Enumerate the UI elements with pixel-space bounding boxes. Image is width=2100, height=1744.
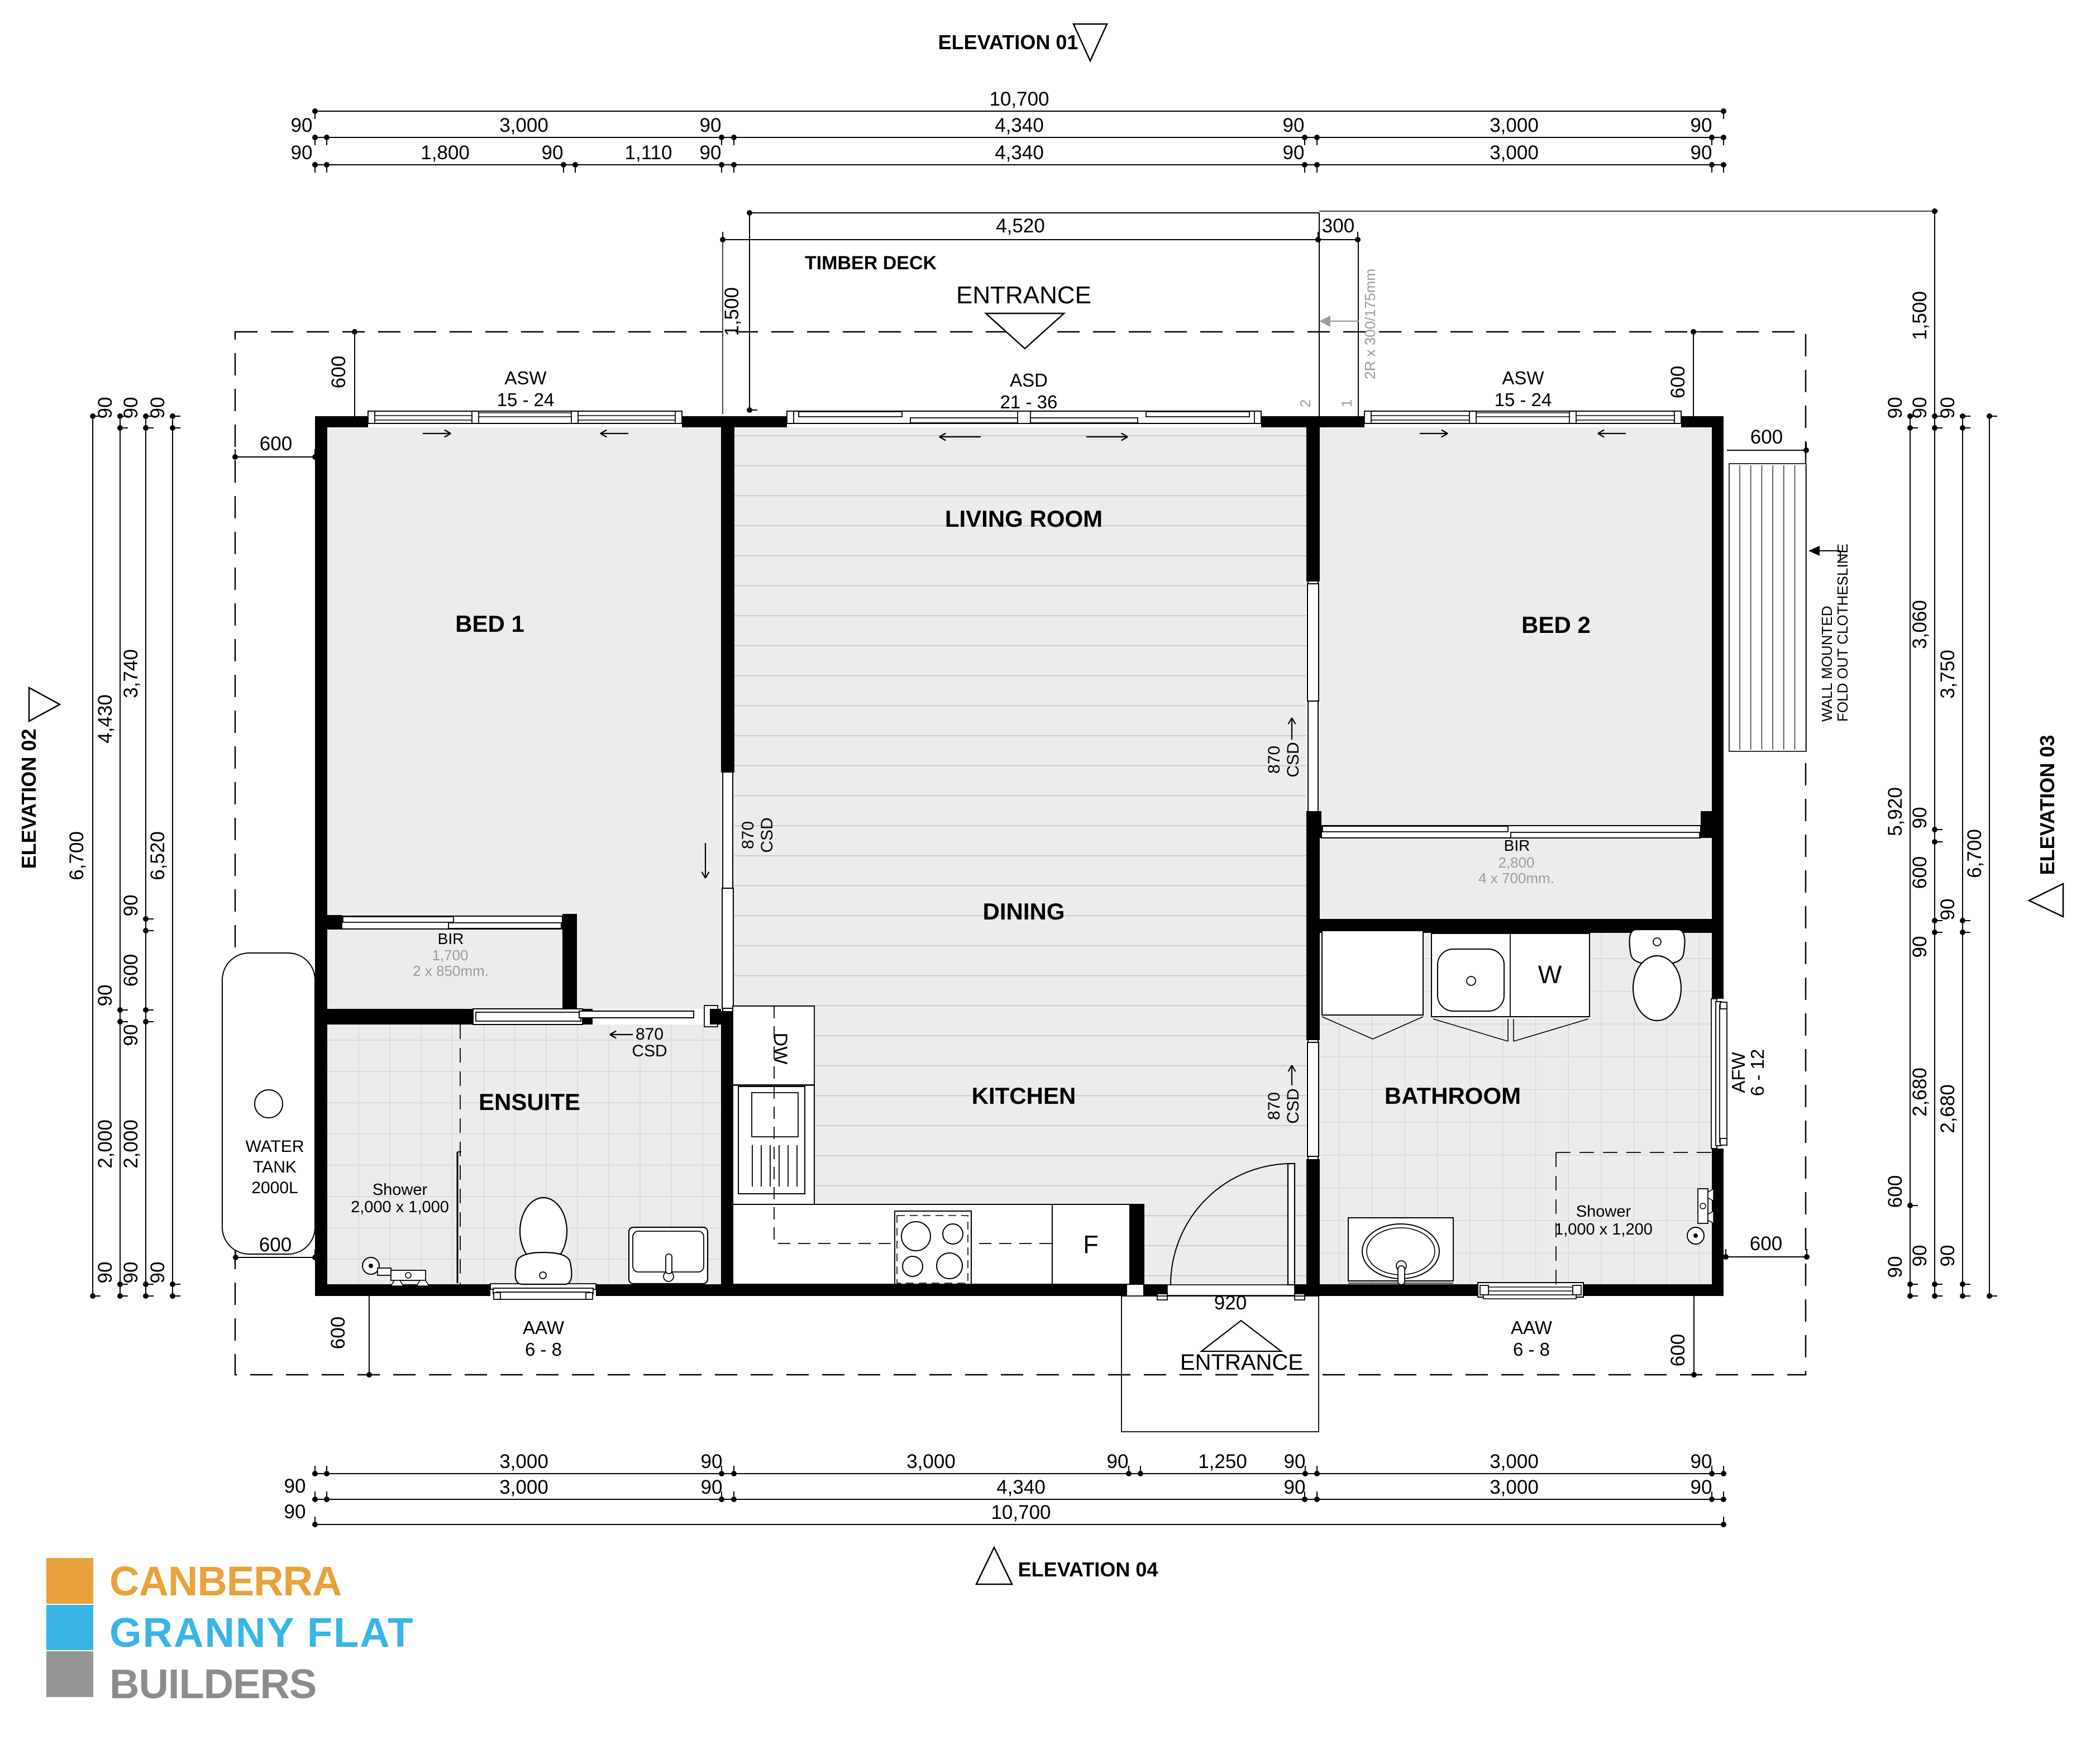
svg-text:90: 90: [120, 1262, 142, 1284]
svg-text:4,340: 4,340: [996, 1476, 1046, 1498]
svg-text:3,000: 3,000: [1490, 1476, 1539, 1498]
svg-text:3,000: 3,000: [1490, 142, 1539, 164]
svg-text:WALL MOUNTED: WALL MOUNTED: [1819, 606, 1835, 722]
svg-text:90: 90: [1284, 1451, 1306, 1473]
svg-text:LIVING ROOM: LIVING ROOM: [945, 506, 1102, 532]
svg-text:2,000: 2,000: [120, 1119, 142, 1169]
svg-text:15 - 24: 15 - 24: [1495, 389, 1552, 410]
svg-text:3,000: 3,000: [1490, 1451, 1539, 1473]
svg-text:3,000: 3,000: [499, 115, 548, 136]
svg-text:90: 90: [1691, 115, 1712, 136]
svg-text:600: 600: [1667, 1334, 1689, 1366]
svg-text:ELEVATION 02: ELEVATION 02: [17, 729, 40, 869]
svg-text:600: 600: [259, 1234, 292, 1256]
svg-text:AAW: AAW: [523, 1317, 565, 1338]
svg-text:2: 2: [1297, 399, 1314, 407]
svg-text:ASD: ASD: [1010, 370, 1048, 390]
svg-text:6 - 12: 6 - 12: [1747, 1049, 1768, 1096]
svg-text:90: 90: [291, 142, 313, 164]
svg-text:CSD: CSD: [758, 817, 776, 852]
svg-text:AFW: AFW: [1728, 1051, 1749, 1093]
svg-text:600: 600: [1884, 1175, 1906, 1208]
svg-text:5,920: 5,920: [1884, 787, 1906, 836]
svg-text:90: 90: [120, 397, 142, 419]
svg-text:2,000: 2,000: [94, 1119, 116, 1169]
svg-text:ASW: ASW: [504, 368, 547, 388]
svg-text:600: 600: [260, 433, 292, 455]
svg-text:90: 90: [120, 1025, 142, 1046]
svg-text:GRANNY FLAT: GRANNY FLAT: [109, 1609, 414, 1656]
svg-text:4 x 700mm.: 4 x 700mm.: [1478, 870, 1554, 887]
svg-text:CSD: CSD: [1284, 742, 1302, 777]
svg-text:Shower: Shower: [373, 1181, 428, 1199]
svg-text:2,800: 2,800: [1498, 854, 1534, 871]
svg-text:90: 90: [1909, 1245, 1931, 1267]
svg-text:TIMBER DECK: TIMBER DECK: [805, 252, 937, 274]
svg-text:2R x 300/175mm: 2R x 300/175mm: [1362, 269, 1378, 379]
svg-text:6 - 8: 6 - 8: [1513, 1339, 1550, 1360]
svg-text:90: 90: [1691, 1476, 1712, 1498]
svg-text:6 - 8: 6 - 8: [525, 1339, 562, 1360]
svg-text:4,430: 4,430: [94, 694, 116, 744]
svg-text:90: 90: [1107, 1451, 1129, 1473]
svg-text:ENTRANCE: ENTRANCE: [956, 282, 1091, 309]
svg-text:W: W: [1538, 960, 1562, 989]
svg-text:1,110: 1,110: [625, 142, 672, 164]
svg-text:1,250: 1,250: [1198, 1451, 1247, 1473]
svg-text:90: 90: [701, 1476, 723, 1498]
svg-text:BATHROOM: BATHROOM: [1385, 1083, 1521, 1109]
svg-text:3,060: 3,060: [1909, 600, 1931, 649]
svg-text:4,340: 4,340: [995, 142, 1044, 164]
svg-text:F: F: [1083, 1230, 1099, 1259]
svg-text:1: 1: [1338, 399, 1355, 407]
svg-text:Shower: Shower: [1576, 1203, 1631, 1221]
svg-text:3,750: 3,750: [1937, 650, 1959, 699]
svg-text:600: 600: [1667, 366, 1689, 398]
svg-text:BED 1: BED 1: [455, 611, 524, 637]
svg-text:90: 90: [1937, 1245, 1959, 1267]
svg-text:920: 920: [1214, 1292, 1247, 1314]
svg-text:3,000: 3,000: [499, 1476, 548, 1498]
svg-text:DW: DW: [770, 1033, 791, 1065]
svg-text:1,700: 1,700: [432, 947, 468, 964]
svg-text:90: 90: [1283, 142, 1305, 164]
svg-text:600: 600: [1750, 1233, 1782, 1255]
svg-text:90: 90: [94, 397, 116, 419]
svg-text:ENSUITE: ENSUITE: [479, 1089, 580, 1115]
svg-text:AAW: AAW: [1511, 1317, 1553, 1338]
svg-text:870: 870: [636, 1025, 664, 1043]
svg-text:CSD: CSD: [1284, 1088, 1302, 1123]
svg-text:BIR: BIR: [1504, 837, 1530, 854]
svg-text:WATER: WATER: [246, 1137, 304, 1156]
svg-text:10,700: 10,700: [991, 1502, 1051, 1523]
svg-text:1,500: 1,500: [1909, 291, 1931, 340]
svg-text:ELEVATION 04: ELEVATION 04: [1018, 1558, 1158, 1581]
svg-text:3,000: 3,000: [906, 1451, 956, 1473]
svg-text:870: 870: [1265, 1092, 1283, 1120]
svg-text:90: 90: [542, 142, 564, 164]
svg-text:300: 300: [1322, 215, 1354, 237]
svg-text:BUILDERS: BUILDERS: [109, 1661, 316, 1707]
svg-text:90: 90: [1691, 1451, 1712, 1473]
svg-text:KITCHEN: KITCHEN: [972, 1083, 1076, 1109]
svg-text:21 - 36: 21 - 36: [1000, 392, 1058, 412]
svg-text:TANK: TANK: [253, 1158, 297, 1176]
svg-text:600: 600: [1909, 856, 1931, 889]
svg-text:90: 90: [147, 397, 169, 419]
svg-text:6,700: 6,700: [66, 831, 88, 880]
svg-text:600: 600: [328, 356, 350, 388]
svg-text:4,520: 4,520: [996, 215, 1045, 237]
svg-text:6,520: 6,520: [147, 831, 169, 880]
svg-text:15 - 24: 15 - 24: [497, 389, 555, 410]
svg-text:10,700: 10,700: [989, 88, 1049, 110]
svg-text:3,000: 3,000: [1490, 115, 1539, 136]
svg-text:90: 90: [1909, 936, 1931, 958]
svg-text:3,000: 3,000: [499, 1451, 548, 1473]
svg-text:BED 2: BED 2: [1521, 612, 1591, 638]
svg-text:90: 90: [94, 1262, 116, 1284]
svg-text:CANBERRA: CANBERRA: [109, 1558, 341, 1604]
svg-text:90: 90: [284, 1475, 306, 1497]
svg-text:3,740: 3,740: [120, 649, 142, 698]
svg-text:870: 870: [739, 821, 757, 849]
svg-text:600: 600: [120, 954, 142, 987]
svg-text:870: 870: [1265, 746, 1283, 774]
svg-text:2,680: 2,680: [1937, 1084, 1959, 1133]
svg-text:90: 90: [1283, 115, 1305, 136]
svg-text:2,000 x 1,000: 2,000 x 1,000: [351, 1198, 449, 1216]
svg-text:90: 90: [701, 1451, 723, 1473]
svg-text:CSD: CSD: [632, 1042, 667, 1060]
svg-text:ELEVATION 01: ELEVATION 01: [938, 31, 1078, 54]
svg-text:90: 90: [700, 115, 722, 136]
svg-text:90: 90: [1909, 397, 1931, 419]
svg-text:BIR: BIR: [438, 930, 464, 947]
svg-text:DINING: DINING: [983, 898, 1065, 925]
svg-text:90: 90: [1884, 397, 1906, 419]
svg-text:ASW: ASW: [1502, 368, 1544, 388]
svg-text:2000L: 2000L: [251, 1179, 298, 1197]
svg-text:90: 90: [291, 115, 313, 136]
svg-text:2 x 850mm.: 2 x 850mm.: [413, 962, 489, 979]
svg-text:90: 90: [1909, 807, 1931, 829]
svg-text:90: 90: [1284, 1476, 1306, 1498]
svg-text:2,680: 2,680: [1909, 1068, 1931, 1117]
svg-text:90: 90: [700, 142, 722, 164]
svg-text:6,700: 6,700: [1964, 829, 1986, 878]
svg-text:4,340: 4,340: [995, 115, 1044, 136]
svg-text:600: 600: [327, 1317, 349, 1349]
svg-text:600: 600: [1750, 426, 1783, 448]
svg-text:FOLD OUT CLOTHESLINE: FOLD OUT CLOTHESLINE: [1834, 544, 1851, 722]
svg-text:90: 90: [94, 985, 116, 1007]
svg-text:90: 90: [147, 1262, 169, 1284]
svg-text:90: 90: [1937, 899, 1959, 921]
svg-text:90: 90: [1691, 142, 1712, 164]
svg-text:ENTRANCE: ENTRANCE: [1180, 1350, 1303, 1375]
svg-text:ELEVATION 03: ELEVATION 03: [2036, 735, 2059, 875]
svg-text:90: 90: [1937, 397, 1959, 419]
svg-text:90: 90: [284, 1501, 306, 1523]
svg-text:90: 90: [120, 895, 142, 917]
svg-text:1,000 x 1,200: 1,000 x 1,200: [1554, 1221, 1653, 1238]
svg-text:1,500: 1,500: [721, 287, 743, 336]
svg-text:90: 90: [1884, 1256, 1906, 1278]
svg-text:1,800: 1,800: [421, 142, 470, 164]
